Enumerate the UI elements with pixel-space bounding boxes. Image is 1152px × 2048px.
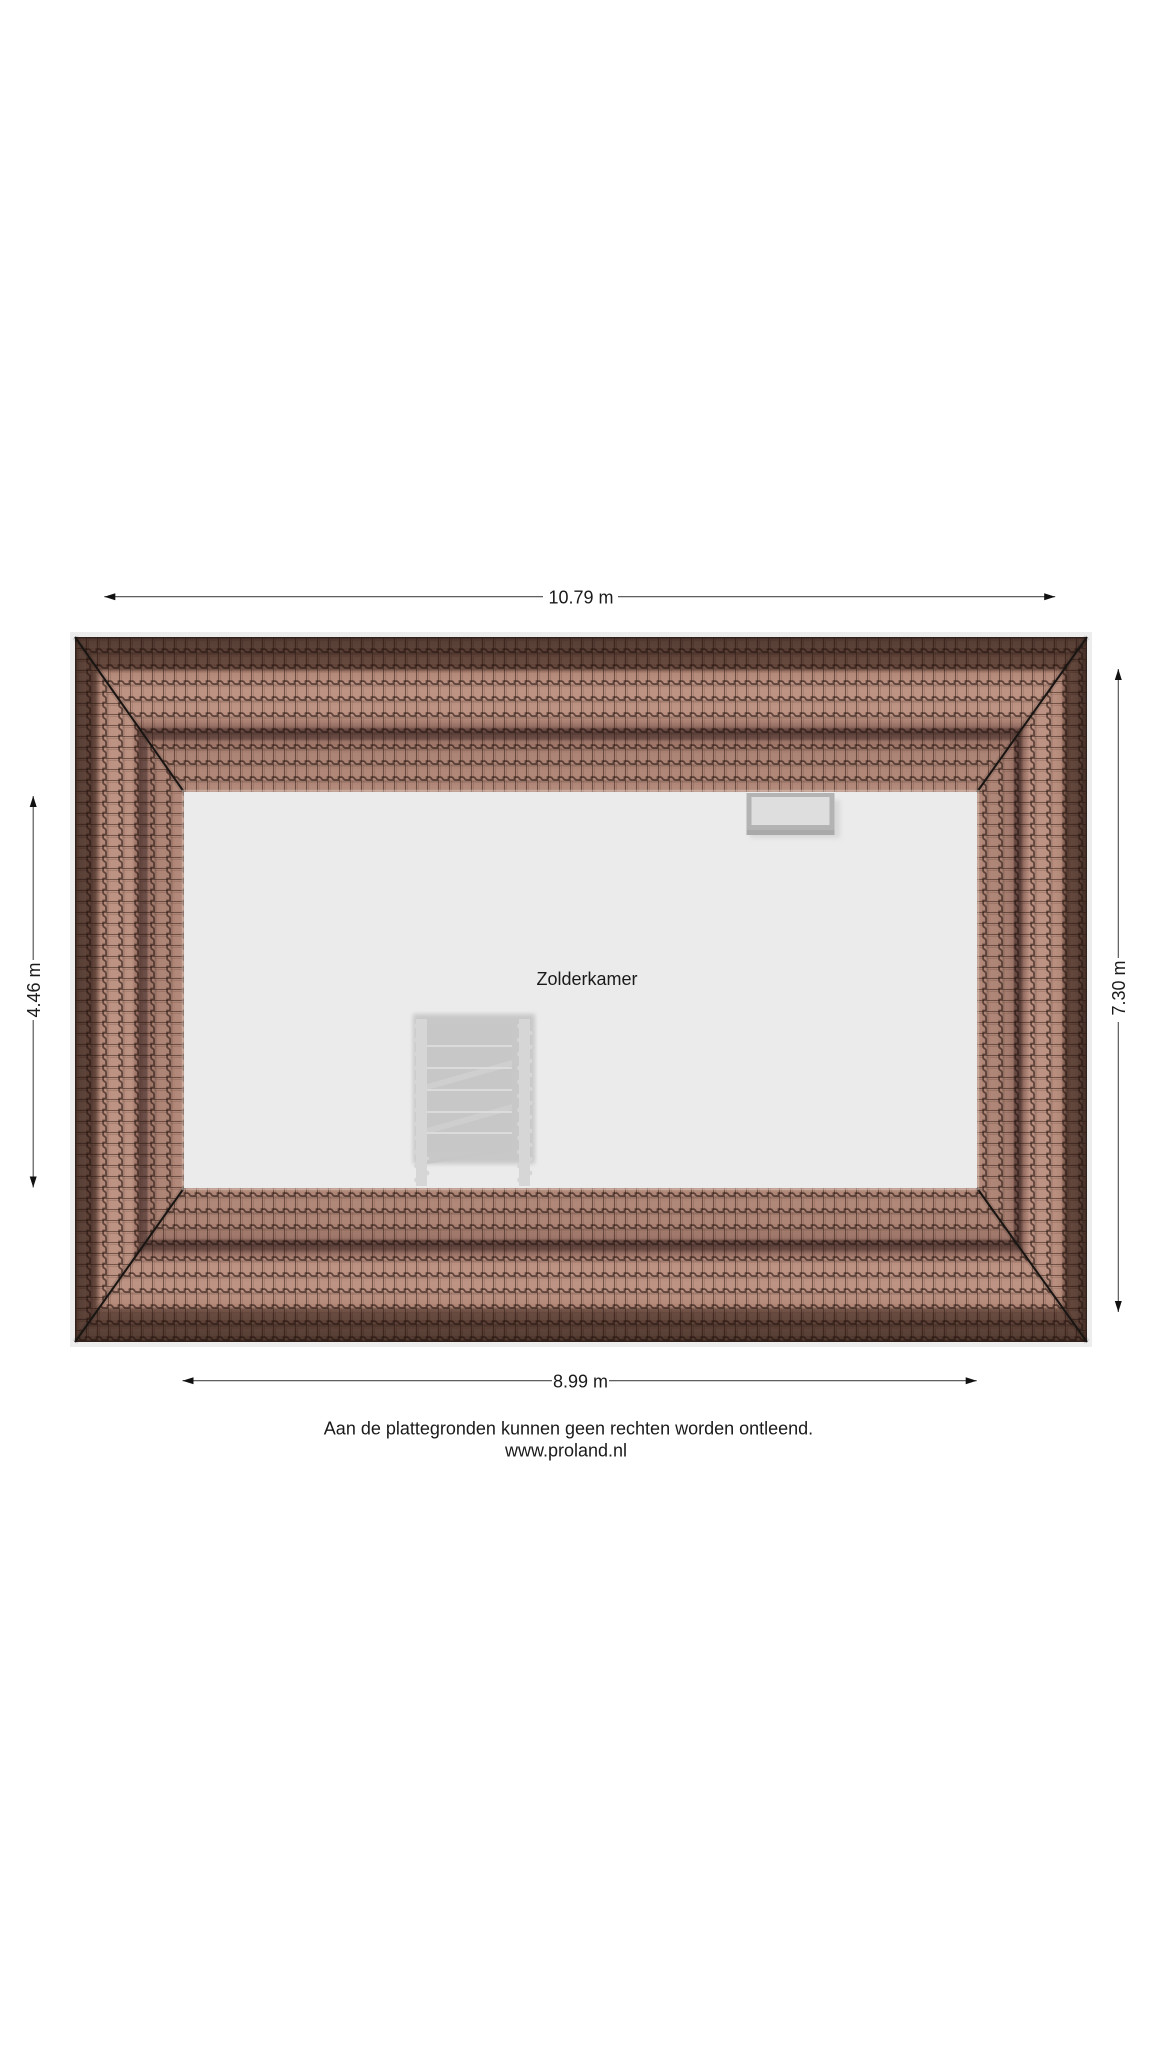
svg-text:Zolderkamer: Zolderkamer <box>536 969 637 989</box>
svg-text:8.99 m: 8.99 m <box>553 1371 608 1391</box>
svg-text:4.46 m: 4.46 m <box>24 962 44 1017</box>
svg-text:Aan de plattegronden kunnen ge: Aan de plattegronden kunnen geen rechten… <box>324 1419 813 1439</box>
svg-text:10.79 m: 10.79 m <box>548 588 613 608</box>
svg-text:7.30 m: 7.30 m <box>1109 960 1129 1015</box>
svg-text:www.proland.nl: www.proland.nl <box>504 1441 627 1461</box>
